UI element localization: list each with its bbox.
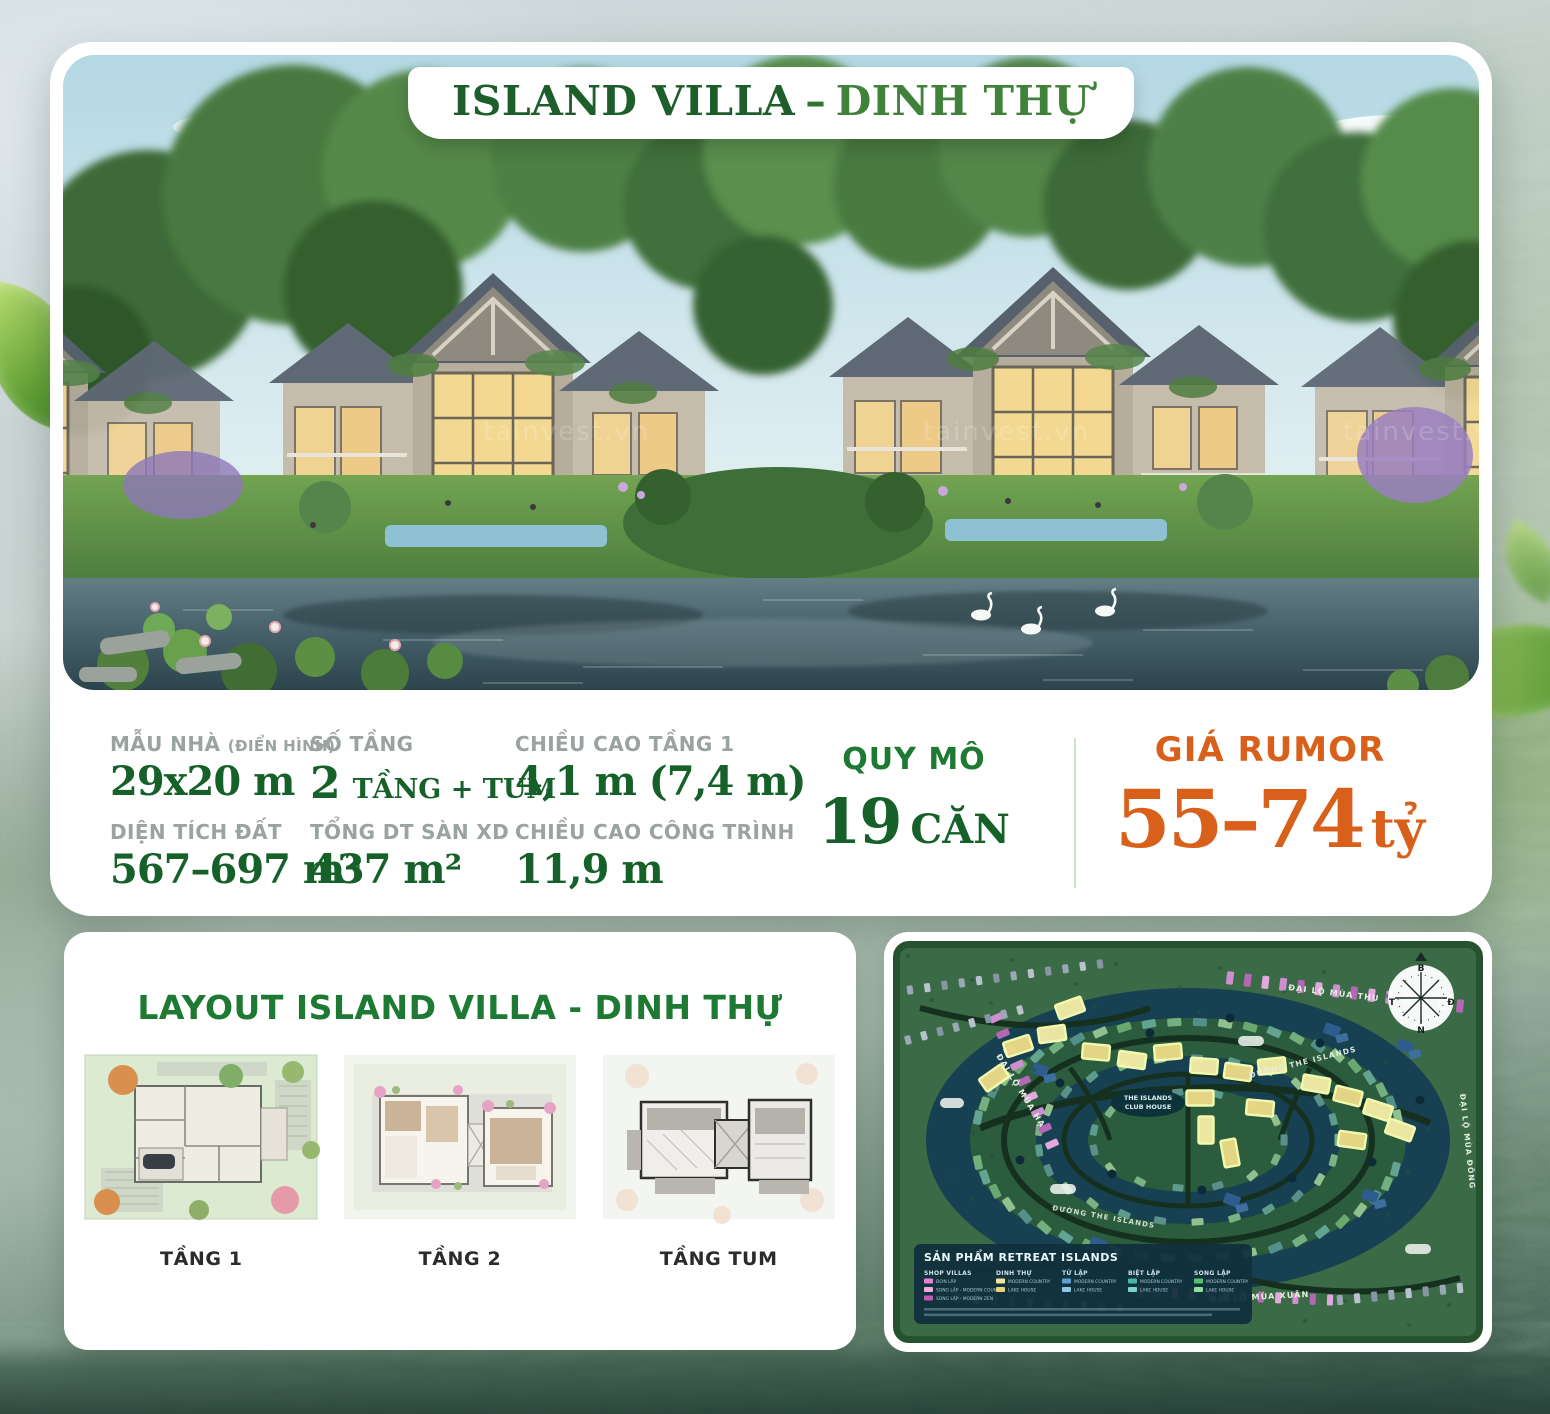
- svg-text:SẢN PHẨM RETREAT ISLANDS: SẢN PHẨM RETREAT ISLANDS: [924, 1249, 1118, 1264]
- svg-text:ĐƠN LẬP: ĐƠN LẬP: [936, 1278, 957, 1285]
- svg-text:N: N: [1417, 1026, 1425, 1036]
- svg-text:Đ: Đ: [1447, 998, 1455, 1008]
- svg-text:TỨ LẬP: TỨ LẬP: [1062, 1270, 1088, 1277]
- scale-value: 19CĂN: [809, 785, 1019, 858]
- masterplan-frame: THE ISLANDS CLUB HOUSE ĐẠI LỘ MÙA THU ĐẠ…: [893, 941, 1483, 1343]
- svg-text:LAKE HOUSE: LAKE HOUSE: [1074, 1288, 1102, 1294]
- title-badge: ISLAND VILLA–DINH THỰ: [408, 67, 1134, 139]
- svg-text:tainvest.vn: tainvest.vn: [483, 417, 650, 447]
- spec-label: CHIỀU CAO TẦNG 1: [515, 732, 805, 758]
- floor-plan-label: TẦNG 2: [334, 1248, 586, 1270]
- price-block: GIÁ RUMOR 55–74tỷ: [1060, 730, 1480, 866]
- svg-text:SONG LẬP - MODERN COUNTRY: SONG LẬP - MODERN COUNTRY: [936, 1287, 1005, 1294]
- spec-column-3: CHIỀU CAO TẦNG 1 4,1 m (7,4 m) CHIỀU CAO…: [515, 732, 805, 908]
- spec-value: 4,1 m (7,4 m): [515, 758, 805, 820]
- title-primary: ISLAND VILLA: [452, 77, 795, 125]
- spec-label: CHIỀU CAO CÔNG TRÌNH: [515, 820, 805, 846]
- svg-text:SONG LẬP: SONG LẬP: [1194, 1270, 1231, 1277]
- layout-card: LAYOUT ISLAND VILLA - DINH THỰ TẦNG 1: [64, 932, 856, 1350]
- svg-text:LAKE HOUSE: LAKE HOUSE: [1206, 1288, 1234, 1294]
- svg-text:tainvest.vn: tainvest.vn: [923, 417, 1090, 447]
- price-value: 55–74tỷ: [1060, 772, 1480, 866]
- floor-plans: TẦNG 1 TẦNG 2: [64, 1050, 856, 1270]
- svg-text:BIỆT LẬP: BIỆT LẬP: [1128, 1269, 1161, 1277]
- svg-text:LAKE HOUSE: LAKE HOUSE: [1140, 1288, 1168, 1294]
- svg-text:MODERN COUNTRY: MODERN COUNTRY: [1008, 1279, 1051, 1285]
- floor-plan-label: TẦNG TUM: [593, 1248, 845, 1270]
- layout-title: LAYOUT ISLAND VILLA - DINH THỰ: [64, 988, 856, 1027]
- price-label: GIÁ RUMOR: [1060, 730, 1480, 770]
- scale-block: QUY MÔ 19CĂN: [809, 742, 1019, 858]
- floor-plan-1: TẦNG 1: [75, 1050, 327, 1270]
- leaf-icon: [1486, 519, 1550, 606]
- villa-photo: tainvest.vn tainvest.vn tainvest.vn ISLA…: [63, 55, 1479, 690]
- masterplan-card: THE ISLANDS CLUB HOUSE ĐẠI LỘ MÙA THU ĐẠ…: [884, 932, 1492, 1352]
- hero-card: tainvest.vn tainvest.vn tainvest.vn ISLA…: [50, 42, 1492, 916]
- svg-text:T: T: [1389, 998, 1396, 1008]
- svg-text:B: B: [1418, 964, 1425, 974]
- floor-plan-2: TẦNG 2: [334, 1050, 586, 1270]
- svg-text:THE ISLANDS: THE ISLANDS: [1124, 1094, 1173, 1102]
- scale-label: QUY MÔ: [809, 742, 1019, 777]
- masterplan-map: THE ISLANDS CLUB HOUSE ĐẠI LỘ MÙA THU ĐẠ…: [900, 948, 1476, 1336]
- title-separator: –: [795, 77, 836, 125]
- svg-text:MODERN COUNTRY: MODERN COUNTRY: [1140, 1279, 1183, 1285]
- svg-text:CLUB HOUSE: CLUB HOUSE: [1125, 1103, 1172, 1111]
- club-house-label: THE ISLANDS CLUB HOUSE: [1111, 1089, 1185, 1117]
- title-secondary: DINH THỰ: [836, 77, 1090, 125]
- svg-text:LAKE HOUSE: LAKE HOUSE: [1008, 1288, 1036, 1294]
- spec-value: 11,9 m: [515, 846, 805, 908]
- poster: tainvest.vn tainvest.vn tainvest.vn ISLA…: [0, 0, 1550, 1414]
- svg-text:SONG LẬP - MODERN ZEN: SONG LẬP - MODERN ZEN: [936, 1295, 993, 1302]
- svg-text:MODERN COUNTRY: MODERN COUNTRY: [1074, 1279, 1117, 1285]
- svg-text:DINH THỰ: DINH THỰ: [996, 1270, 1032, 1277]
- map-legend: SẢN PHẨM RETREAT ISLANDS SHOP VILLASĐƠN …: [914, 1244, 1252, 1324]
- floor-plan-tum: TẦNG TUM: [593, 1050, 845, 1270]
- svg-text:MODERN COUNTRY: MODERN COUNTRY: [1206, 1279, 1249, 1285]
- villa-render: tainvest.vn tainvest.vn tainvest.vn: [63, 55, 1479, 690]
- svg-text:SHOP VILLAS: SHOP VILLAS: [924, 1270, 972, 1277]
- svg-text:tainvest.vn: tainvest.vn: [1343, 417, 1479, 447]
- floor-plan-label: TẦNG 1: [75, 1248, 327, 1270]
